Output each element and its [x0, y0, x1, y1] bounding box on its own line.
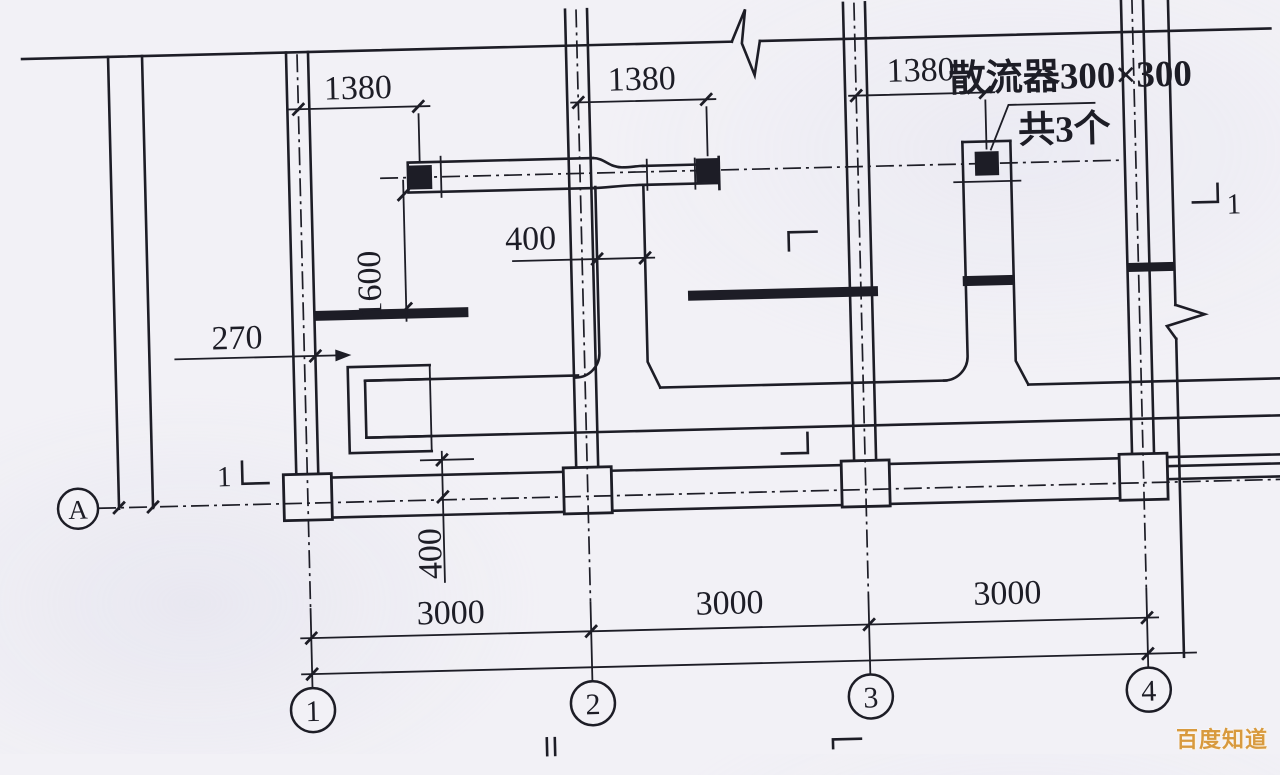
dimension-270-group: 270 [174, 317, 352, 365]
break-symbol-right [1166, 304, 1205, 339]
dimension-1380-group: 1380 1380 1380 [286, 50, 996, 166]
partitions [314, 262, 1176, 321]
scanned-drawing-page: { "drawing": { "grid": { "row_label": "A… [0, 0, 1280, 754]
bottom-edge-fragments [547, 731, 861, 757]
bubble-4-label: 4 [1141, 674, 1157, 707]
diffuser-1 [408, 165, 433, 190]
arrow-270 [335, 349, 351, 361]
riser-duct-3 [938, 141, 1028, 387]
bubble-2-label: 2 [585, 688, 601, 721]
grid-line-1 [297, 54, 311, 608]
section-bracket-right [1192, 184, 1217, 203]
dimension-400-branch-group: 400 [505, 218, 656, 268]
bubble-3-label: 3 [863, 681, 879, 714]
bubble-1-label: 1 [305, 695, 321, 728]
columns [283, 453, 1168, 521]
corner-mark-lower [781, 433, 807, 454]
drawing-sheet: 1380 1380 1380 1600 400 270 400 3000 300… [0, 0, 1280, 770]
dimension-bays-group: 3000 3000 3000 [299, 571, 1197, 681]
section-label-right: 1 [1226, 188, 1241, 220]
dim-400-duct: 400 [412, 528, 450, 580]
partition-room1 [314, 307, 468, 321]
dim-3000-3: 3000 [973, 574, 1042, 613]
dim-1600: 1600 [351, 250, 390, 319]
wall-grid1 [286, 52, 318, 472]
duct-plan-svg: 1380 1380 1380 1600 400 270 400 3000 300… [0, 0, 1280, 770]
dimension-400-duct-group: 400 [410, 450, 477, 584]
bubble-A-label: A [68, 495, 89, 525]
grid-centerlines [86, 0, 1280, 694]
left-wall-lines [108, 56, 153, 509]
dim-270: 270 [211, 319, 263, 357]
dim-400-branch: 400 [505, 220, 557, 258]
dim-1380-3: 1380 [886, 51, 955, 90]
dim-3000-2: 3000 [695, 584, 764, 623]
duct-transition [593, 157, 643, 168]
corner-mark-upper [789, 232, 817, 251]
section-bracket-left [242, 461, 269, 484]
partition-grid4-connector [1127, 262, 1174, 272]
diffuser-2 [696, 158, 721, 183]
diffuser-3 [975, 151, 1000, 176]
dim-1380-1: 1380 [323, 69, 392, 108]
grid-line-A [98, 479, 1280, 508]
diffuser-label: 散流器300×300 [948, 52, 1192, 100]
section-marks: 1 1 [211, 183, 1248, 493]
right-outer-wall [1159, 0, 1213, 657]
dimension-1600-group: 1600 [349, 180, 412, 323]
partition-room3 [963, 275, 1015, 286]
dim-1380-2: 1380 [607, 60, 676, 99]
watermark: 百度知道 [1176, 722, 1276, 750]
dim-3000-1: 3000 [416, 594, 485, 633]
section-label-left: 1 [217, 461, 232, 493]
diffuser-count: 共3个 [1018, 107, 1111, 151]
break-symbol-top [731, 9, 761, 76]
duct-end-cap-inner [365, 379, 431, 438]
